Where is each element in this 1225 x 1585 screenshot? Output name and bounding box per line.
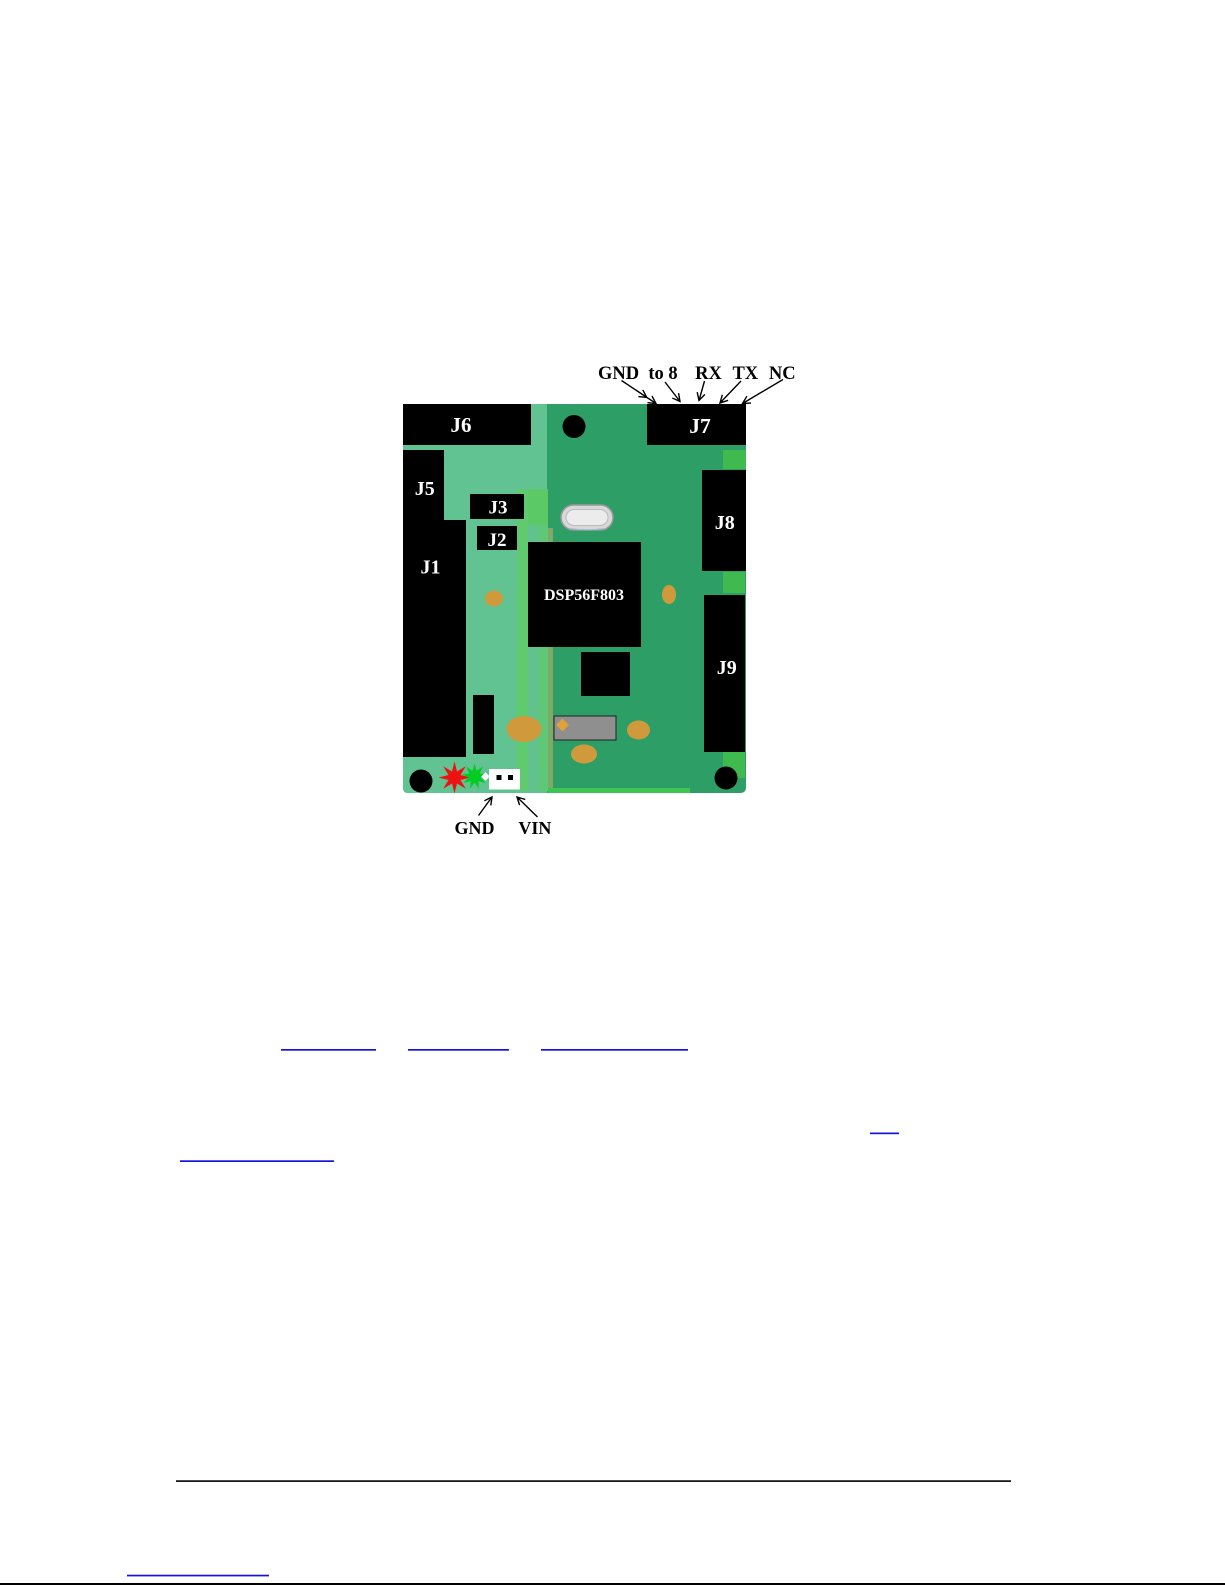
svg-text:GND: GND [598,364,639,384]
svg-text:TX: TX [732,364,758,384]
svg-text:RX: RX [695,364,722,384]
svg-text:J2: J2 [488,530,507,551]
svg-text:J3: J3 [489,498,508,519]
svg-text:J6: J6 [451,413,472,437]
svg-text:J1: J1 [421,557,441,579]
svg-text:GND: GND [455,818,495,838]
svg-text:J5: J5 [415,478,435,500]
svg-text:NC: NC [769,364,796,384]
svg-text:J9: J9 [717,657,737,679]
svg-text:to 8: to 8 [648,364,677,384]
svg-text:J8: J8 [715,512,735,534]
svg-text:J7: J7 [689,414,711,438]
svg-text:VIN: VIN [518,818,551,838]
svg-text:DSP56F803: DSP56F803 [544,587,624,604]
